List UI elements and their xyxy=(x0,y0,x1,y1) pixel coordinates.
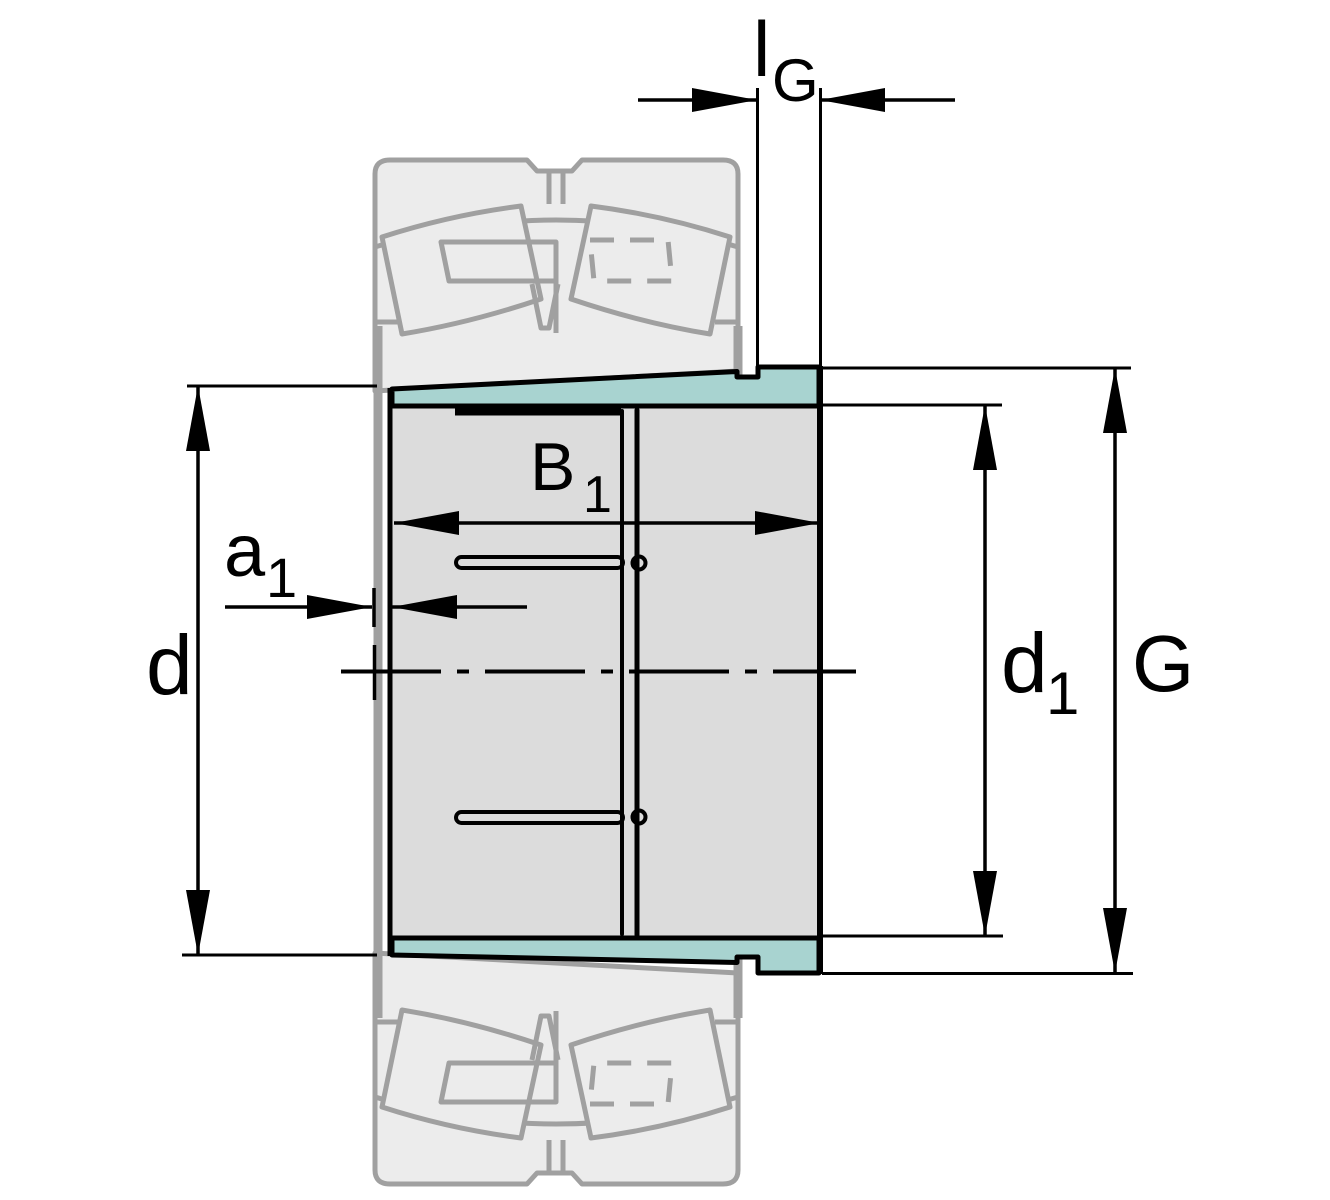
d1-arrow-top xyxy=(973,405,997,470)
label-g: G xyxy=(1132,619,1194,708)
bearing-sleeve-drawing: l G B 1 a 1 d d 1 G xyxy=(0,0,1330,1200)
d-arrow-bottom xyxy=(186,890,210,955)
label-d1: d xyxy=(1001,616,1048,710)
d1-arrow-bottom xyxy=(973,871,997,936)
lg-arrow-right xyxy=(820,88,885,112)
label-a1-sub: 1 xyxy=(266,546,297,609)
label-b1: B xyxy=(530,429,575,505)
label-d1-sub: 1 xyxy=(1046,660,1079,727)
ghost-bearing-top xyxy=(375,160,740,391)
lg-arrow-left xyxy=(692,88,757,112)
ghost-bearing-bottom xyxy=(375,953,740,1184)
a1-arrow-left xyxy=(307,595,372,619)
g-arrow-bottom xyxy=(1103,908,1127,973)
label-a1: a xyxy=(224,509,266,592)
label-d: d xyxy=(146,618,193,712)
drawing-canvas: l G B 1 a 1 d d 1 G xyxy=(0,0,1330,1200)
lg-extension-lines xyxy=(758,88,821,375)
g-arrow-top xyxy=(1103,368,1127,433)
label-lg: l xyxy=(753,5,770,93)
label-lg-sub: G xyxy=(772,47,819,114)
label-b1-sub: 1 xyxy=(583,466,612,524)
d-arrow-top xyxy=(186,386,210,451)
